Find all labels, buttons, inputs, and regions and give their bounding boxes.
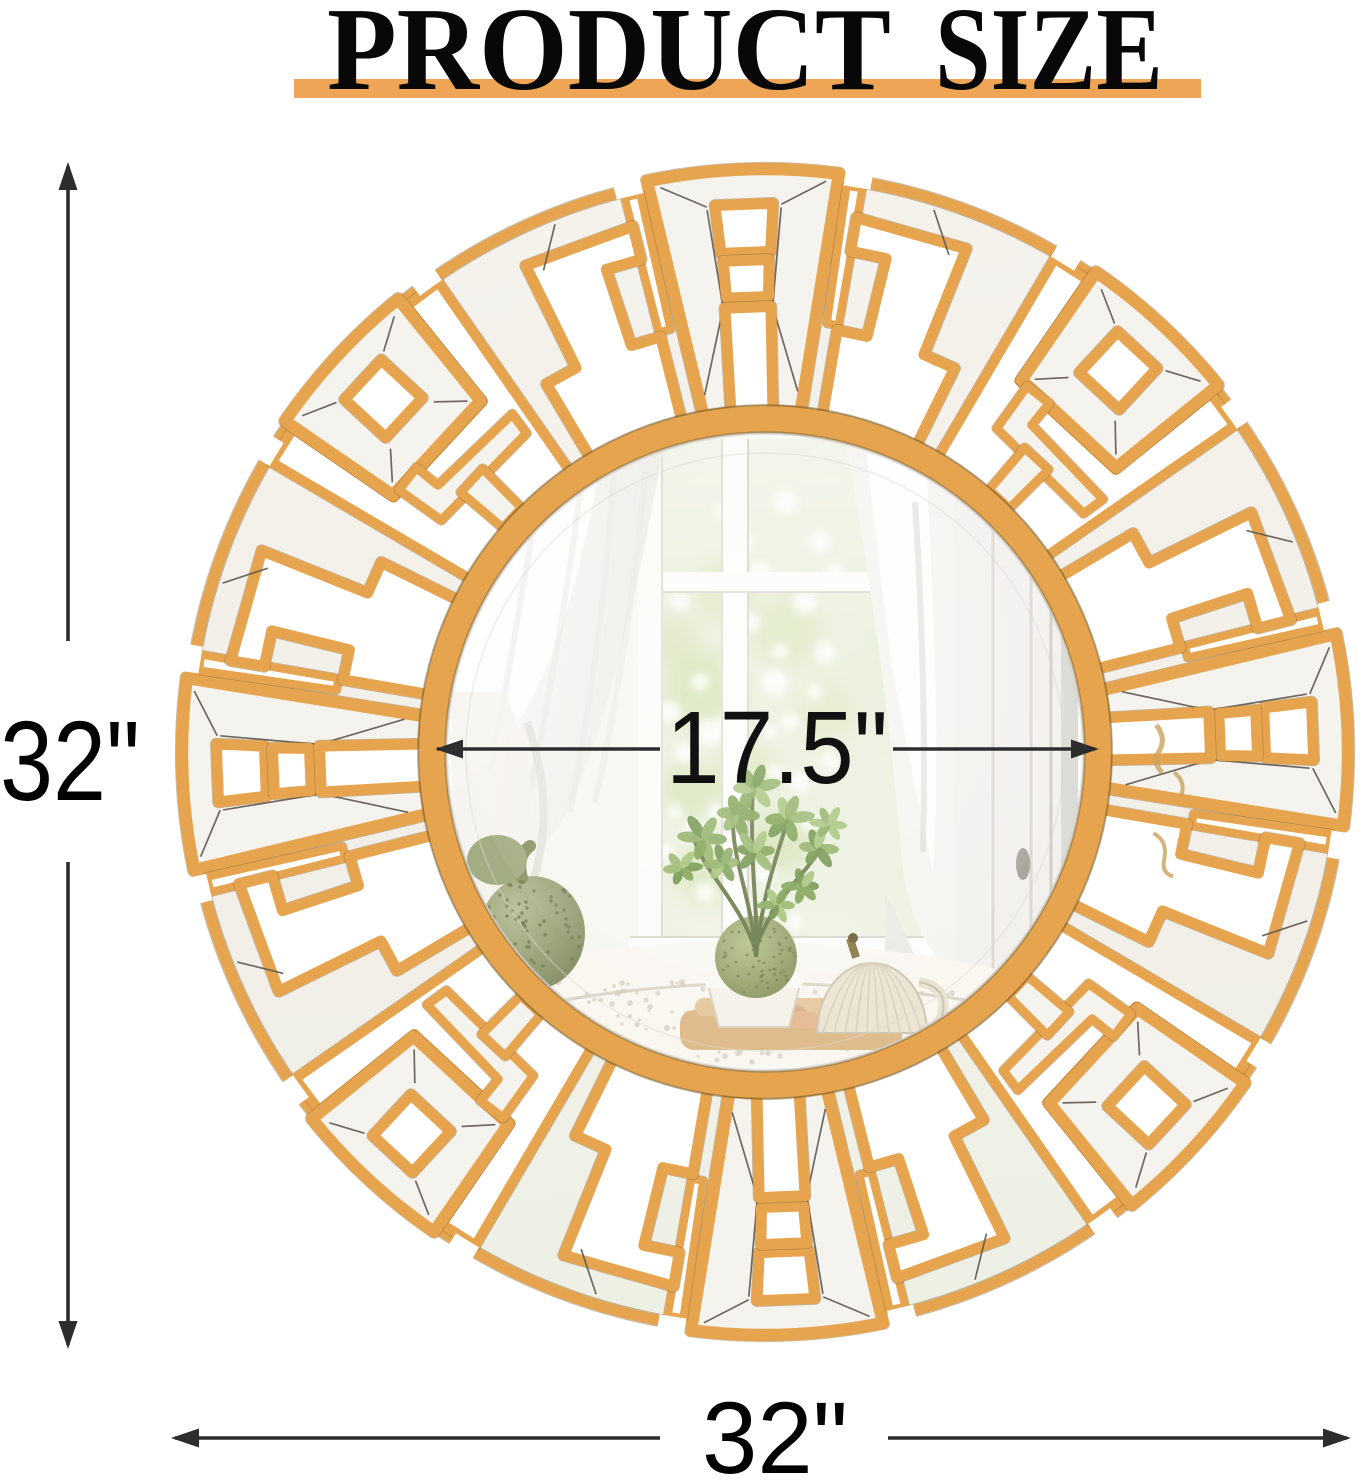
svg-text:32": 32" xyxy=(0,698,140,824)
svg-text:17.5": 17.5" xyxy=(666,690,888,805)
svg-text:SIZE: SIZE xyxy=(935,0,1163,115)
svg-text:PRODUCT: PRODUCT xyxy=(327,0,891,115)
svg-text:32": 32" xyxy=(702,1381,848,1477)
